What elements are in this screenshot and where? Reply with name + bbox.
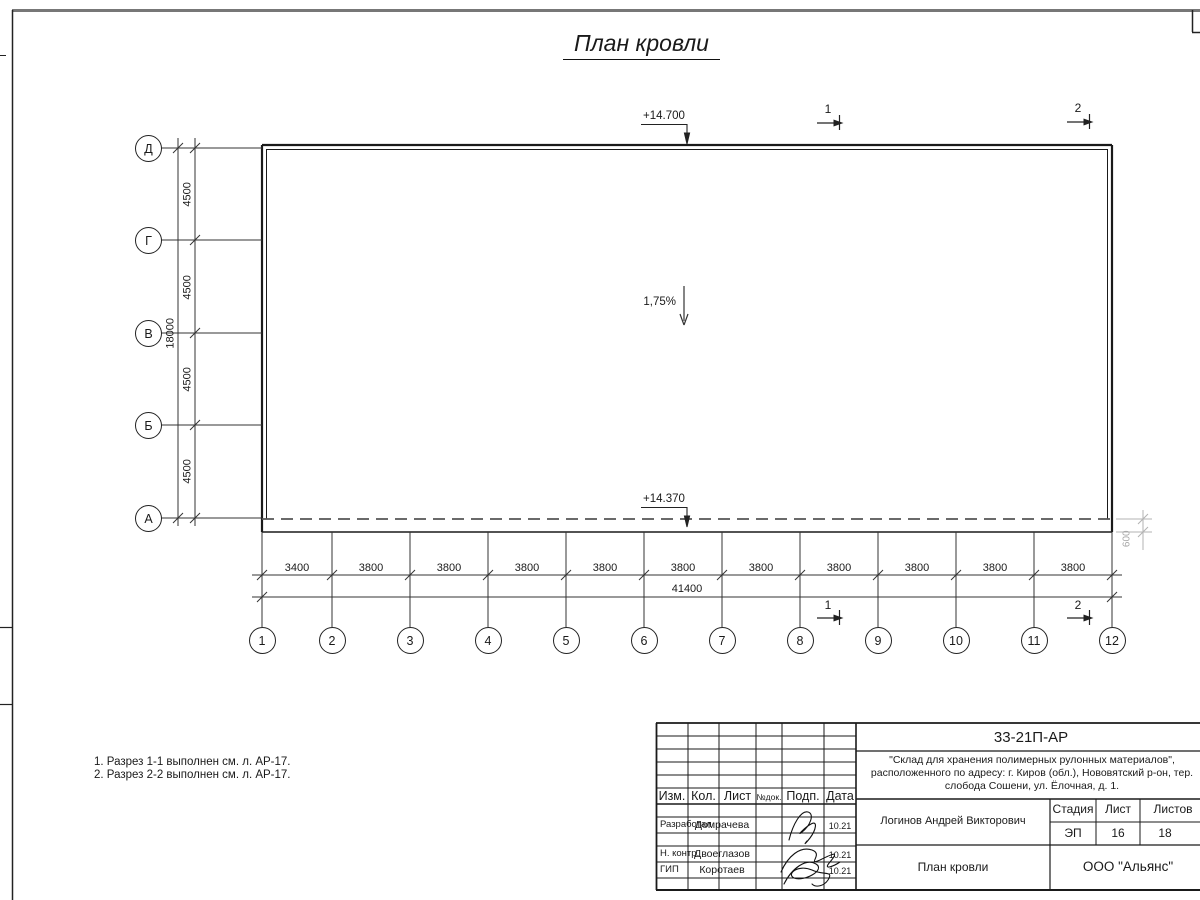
- dim-label: 3800: [814, 562, 864, 575]
- dim-label: 4500: [182, 174, 195, 214]
- titleblock-sheets-header: Листов: [1140, 803, 1200, 817]
- row-marker-label: В: [144, 327, 152, 341]
- elevation-leaders: [641, 125, 690, 528]
- col-marker-label: 11: [1028, 634, 1041, 648]
- titleblock-project-line: слобода Сошени, ул. Ёлочная, д. 1.: [858, 780, 1200, 792]
- row-marker-label: А: [144, 512, 152, 526]
- dim-total-label: 18000: [165, 308, 178, 358]
- col-marker: 4: [475, 627, 502, 654]
- col-marker-label: 10: [949, 634, 963, 648]
- dim-label: 4500: [182, 451, 195, 491]
- titleblock-project-line: "Склад для хранения полимерных рулонных …: [858, 754, 1200, 766]
- titleblock-company: ООО "Альянс": [1050, 859, 1200, 875]
- col-marker-label: 2: [329, 634, 336, 648]
- dim-label: 3800: [424, 562, 474, 575]
- row-marker: В: [135, 320, 162, 347]
- row-marker-label: Д: [144, 142, 152, 156]
- row-marker: Г: [135, 227, 162, 254]
- drawing-sheet: { "title": "План кровли", "plan": { "gri…: [0, 0, 1200, 900]
- col-marker: 2: [319, 627, 346, 654]
- titleblock-role: ГИП: [660, 865, 679, 876]
- col-marker-label: 9: [875, 634, 882, 648]
- col-marker: 1: [249, 627, 276, 654]
- titleblock-doc-number: 33-21П-АР: [856, 729, 1200, 746]
- col-marker: 10: [943, 627, 970, 654]
- elevation-mark-top: +14.700: [624, 110, 704, 123]
- col-marker: 8: [787, 627, 814, 654]
- elevation-mark-eaves: +14.370: [624, 493, 704, 506]
- dim-label: 3800: [502, 562, 552, 575]
- section-marker-1-top: 1: [820, 103, 836, 117]
- titleblock-col-header: Подп.: [782, 789, 824, 803]
- section-arrows: [817, 114, 1092, 625]
- titleblock-date: 10.21: [824, 866, 856, 876]
- titleblock-approver: Логинов Андрей Викторович: [856, 815, 1050, 828]
- note-line: 2. Разрез 2-2 выполнен см. л. АР-17.: [94, 769, 291, 782]
- dim-label: 3800: [892, 562, 942, 575]
- titleblock-sheet-header: Лист: [1096, 803, 1140, 817]
- slope-arrow: [680, 286, 688, 325]
- titleblock-sheets-value: 18: [1140, 827, 1190, 841]
- section-marker-2-bottom: 2: [1070, 599, 1086, 613]
- dim-label: 3800: [346, 562, 396, 575]
- titleblock-name: Домрачева: [688, 819, 756, 831]
- col-marker-label: 1: [259, 634, 266, 648]
- titleblock-project-line: расположенного по адресу: г. Киров (обл.…: [858, 767, 1200, 779]
- note-line: 1. Разрез 1-1 выполнен см. л. АР-17.: [94, 756, 291, 769]
- titleblock-name: Коротаев: [688, 864, 756, 876]
- titleblock-date: 10.21: [824, 821, 856, 831]
- building-outline: [262, 145, 1112, 532]
- dim-total-label: 41400: [657, 583, 717, 596]
- slope-label: 1,75%: [616, 296, 676, 309]
- col-marker: 11: [1021, 627, 1048, 654]
- section-marker-2-top: 2: [1070, 102, 1086, 116]
- dim-label: 3800: [970, 562, 1020, 575]
- titleblock-name: Двоеглазов: [688, 848, 756, 860]
- titleblock-date: 10.21: [824, 850, 856, 860]
- col-marker-label: 3: [407, 634, 414, 648]
- col-marker: 9: [865, 627, 892, 654]
- titleblock-col-header: №док.: [756, 793, 782, 803]
- section-marker-1-bottom: 1: [820, 599, 836, 613]
- col-marker-label: 5: [563, 634, 570, 648]
- row-marker: Д: [135, 135, 162, 162]
- row-marker: А: [135, 505, 162, 532]
- col-marker-label: 4: [485, 634, 492, 648]
- col-marker-label: 7: [719, 634, 726, 648]
- titleblock-col-header: Кол.: [688, 789, 719, 803]
- col-marker-label: 6: [641, 634, 648, 648]
- titleblock-stage-header: Стадия: [1050, 803, 1096, 817]
- dim-label: 4500: [182, 267, 195, 307]
- titleblock-stage-value: ЭП: [1050, 827, 1096, 841]
- col-marker: 7: [709, 627, 736, 654]
- col-marker: 3: [397, 627, 424, 654]
- titleblock-col-header: Дата: [824, 789, 856, 803]
- col-marker-label: 12: [1105, 634, 1119, 648]
- dim-label: 3800: [736, 562, 786, 575]
- dim-label: 3800: [1048, 562, 1098, 575]
- titleblock-drawing-title: План кровли: [856, 861, 1050, 875]
- col-marker: 6: [631, 627, 658, 654]
- dim-label: 3800: [580, 562, 630, 575]
- col-marker: 12: [1099, 627, 1126, 654]
- dim-label: 3400: [272, 562, 322, 575]
- row-marker: Б: [135, 412, 162, 439]
- titleblock-col-header: Изм.: [656, 789, 688, 803]
- col-marker-label: 8: [797, 634, 804, 648]
- row-marker-label: Г: [145, 234, 152, 248]
- overhang-dim-label: 600: [1121, 524, 1133, 554]
- row-marker-label: Б: [144, 419, 152, 433]
- dim-label: 4500: [182, 359, 195, 399]
- col-marker: 5: [553, 627, 580, 654]
- dim-label: 3800: [658, 562, 708, 575]
- grid-lines: [161, 148, 1112, 627]
- page-title: План кровли: [563, 30, 720, 60]
- titleblock-sheet-value: 16: [1096, 827, 1140, 841]
- titleblock-col-header: Лист: [719, 789, 756, 803]
